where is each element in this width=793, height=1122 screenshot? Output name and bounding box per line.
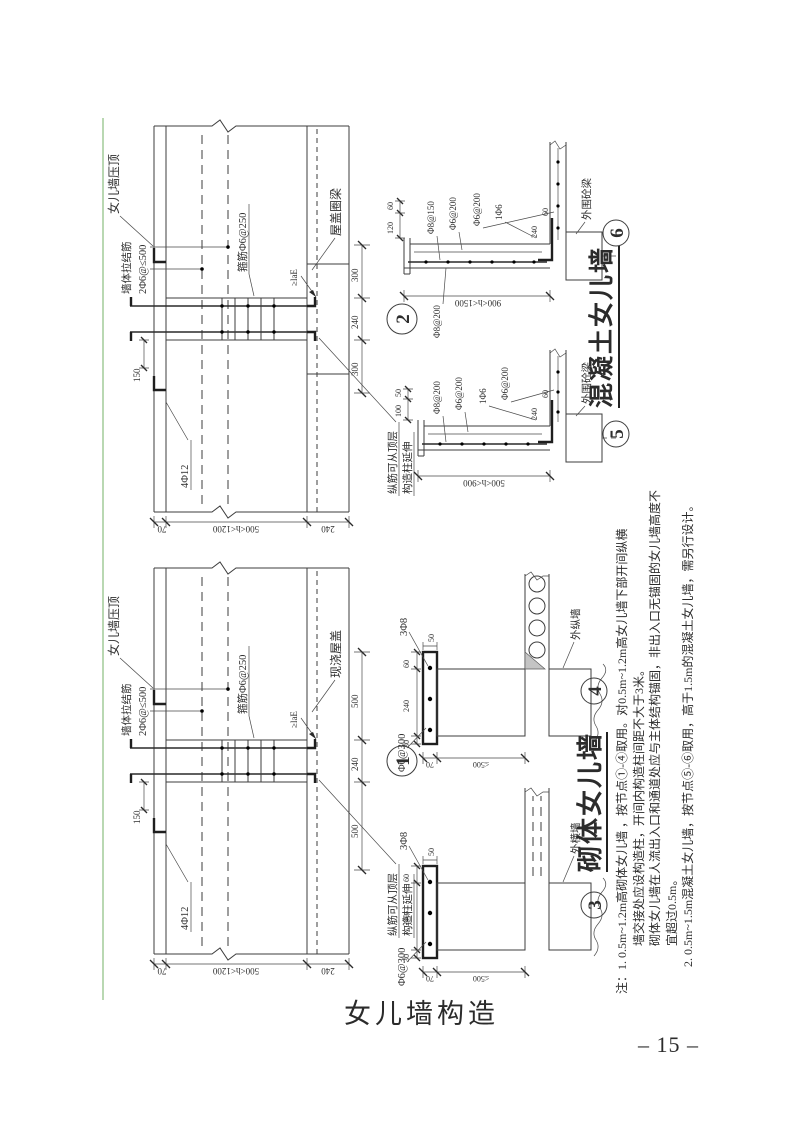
- tie-label-line1: 墙体拉结筋: [120, 242, 133, 295]
- dim-cap: 60: [402, 874, 411, 882]
- dim-cap-edge: 50: [427, 848, 436, 856]
- roof-label: 屋盖圈梁: [328, 188, 343, 236]
- dim-seg: 240: [350, 757, 360, 771]
- note-line: 砌体女儿墙在人流出入口和通道处应与主体结构锚固，非出入口无锚固的女儿墙高度不: [647, 514, 664, 994]
- detail-number: 4: [585, 686, 606, 696]
- detail-number: 5: [607, 429, 628, 439]
- dim-seg: 240: [350, 315, 360, 329]
- rebar-label: Φ6@200: [448, 197, 458, 230]
- detail-5-height-dim: 500<h<900: [414, 470, 554, 488]
- dim-seg: 500: [350, 824, 360, 838]
- detail-3-labels: Φ6@300 3Φ8 外横墙: [397, 822, 582, 986]
- note-prefix: 注：: [615, 970, 629, 994]
- detail-6-height-dim: 900<h<1500: [400, 290, 554, 308]
- detail-2-left-dim: 70 500<h<1200 240: [150, 516, 353, 534]
- coping-label: 女儿墙压顶: [106, 154, 121, 214]
- dim-seg: 300: [350, 268, 360, 282]
- detail-2-hook-dim: 150: [132, 337, 149, 382]
- wall-name-label: 外纵墙: [569, 608, 582, 640]
- concrete-parapet-heading: 混凝土女儿墙: [588, 246, 620, 408]
- detail-4-side-dims: 70 ≤500 50: [419, 634, 529, 769]
- notes-block: 注：1. 0.5m~1.2m高砌体女儿墙 ，按节点①-④取用。对0.5m~1.2…: [614, 514, 697, 994]
- rotated-drawing-canvas: 150 女儿墙压顶 墙体拉结筋 2Φ6@≤500 4Φ12 箍筋Φ6@250 ≥…: [100, 116, 712, 1000]
- dim-seg: 300: [350, 362, 360, 376]
- detail-5-cap-dim: 100 50: [394, 386, 413, 423]
- page-caption: 女儿墙构造: [344, 992, 499, 1031]
- detail-2-wall: [154, 120, 349, 518]
- anchor-length-label: ≥laE: [289, 711, 299, 728]
- stirrup-label: 箍筋Φ6@250: [236, 655, 249, 714]
- note-line: 2. 0.5m~1.5m混凝土女儿墙，按节点⑤-⑥取用，高于1.5m的混凝土女儿…: [680, 514, 697, 994]
- detail-3-number: 3: [581, 892, 607, 918]
- rebar-label: Φ8@200: [432, 381, 442, 414]
- coping-bars-label: 3Φ8: [399, 618, 410, 636]
- detail-1-wall: [154, 562, 349, 960]
- detail-6-wall: [404, 238, 550, 274]
- dim-bend: 60: [541, 390, 550, 398]
- dim-left: 240: [321, 524, 335, 534]
- detail-4-walls: [437, 572, 606, 742]
- detail-6-number: 6: [603, 220, 629, 246]
- dim-left: 70: [426, 760, 434, 769]
- beam-label: 外围砼梁: [580, 178, 593, 220]
- stirrup-label: 箍筋Φ6@250: [236, 213, 249, 272]
- detail-1-left-dim: 70 500<h<1200 240: [150, 958, 353, 976]
- dim-150: 150: [132, 810, 142, 824]
- detail-4-number: 4: [581, 678, 607, 704]
- tie-label-line2: 2Φ6@≤500: [138, 687, 149, 736]
- coping-mesh-label: Φ6@300: [397, 948, 408, 986]
- coping-bars-label: 3Φ8: [399, 832, 410, 850]
- dim-left: 70: [157, 524, 167, 534]
- detail-1-bottom-dim: 500 240 500: [350, 648, 370, 874]
- detail-1-hook-dim: 150: [132, 779, 149, 824]
- dim-bend: 240: [530, 226, 539, 238]
- tie-label-line1: 墙体拉结筋: [120, 684, 133, 737]
- roof-label: 现浇屋盖: [329, 630, 343, 678]
- detail-2-bottom-dim: 300 240 300: [350, 241, 370, 397]
- column-bars-label: 4Φ12: [180, 465, 191, 488]
- detail-number: 6: [607, 228, 628, 238]
- column-bars-label: 4Φ12: [180, 907, 191, 930]
- detail-number: 3: [585, 900, 606, 910]
- rebar-label: Φ6@200: [454, 377, 464, 410]
- masonry-parapet-heading: 砌体女儿墙: [576, 732, 608, 872]
- detail-4-coping: [423, 652, 437, 744]
- dim-bend: 60: [541, 208, 550, 216]
- dim-height: 900<h<1500: [454, 298, 501, 308]
- dim-height: 500<h<900: [463, 478, 505, 488]
- dim-left: ≤500: [473, 974, 489, 983]
- rebar-label: 1Φ6: [478, 388, 488, 404]
- tie-label-line2: 2Φ6@≤500: [138, 245, 149, 294]
- dim-cap: 50: [394, 389, 403, 397]
- detail-6-labels: Φ8@200 Φ8@150 Φ6@200 Φ6@200 1Φ6 240 60 外…: [426, 178, 593, 338]
- wall-rebar-label: Φ8@200: [432, 305, 442, 338]
- dim-left: 70: [426, 974, 434, 983]
- detail-5-number: 5: [603, 421, 629, 447]
- note-line: 宜超过0.5m。: [664, 514, 681, 994]
- detail-5-labels: Φ8@200 Φ6@200 1Φ6 Φ6@200 240 60 外围砼梁: [432, 362, 593, 442]
- note-line: 注：1. 0.5m~1.2m高砌体女儿墙 ，按节点①-④取用。对0.5m~1.2…: [614, 514, 631, 994]
- dim-left: 500<h<1200: [212, 524, 259, 534]
- coping-label: 女儿墙压顶: [106, 596, 121, 656]
- detail-3-coping: [423, 866, 437, 958]
- page-number: – 15 –: [638, 1032, 699, 1058]
- detail-4-labels: Φ6@300 3Φ8 外纵墙: [397, 608, 582, 772]
- detail-2-labels: 女儿墙压顶 墙体拉结筋 2Φ6@≤500 4Φ12 箍筋Φ6@250 ≥laE …: [106, 154, 414, 496]
- scanned-page: 150 女儿墙压顶 墙体拉结筋 2Φ6@≤500 4Φ12 箍筋Φ6@250 ≥…: [0, 0, 793, 1122]
- anchor-length-label: ≥laE: [289, 269, 299, 286]
- dim-seg: 500: [350, 694, 360, 708]
- detail-3-side-dims: 70 ≤500 50: [419, 848, 529, 983]
- rebar-label: 1Φ6: [494, 204, 504, 220]
- detail-2-drawing: 150 女儿墙压顶 墙体拉结筋 2Φ6@≤500 4Φ12 箍筋Φ6@250 ≥…: [104, 104, 434, 534]
- detail-1-drawing: 150 女儿墙压顶 墙体拉结筋 2Φ6@≤500 4Φ12 箍筋Φ6@250 ≥…: [104, 546, 434, 976]
- rebar-label: Φ6@200: [500, 367, 510, 400]
- rebar-label: Φ6@200: [472, 193, 482, 226]
- dim-150: 150: [132, 368, 142, 382]
- dim-cap: 120: [386, 222, 395, 234]
- dim-bend: 240: [530, 408, 539, 420]
- note-line: 墙交接处应设构造柱，开间内构造柱间距不大于3米。: [631, 514, 648, 994]
- dim-cap: 60: [386, 202, 395, 210]
- dim-left: ≤500: [473, 760, 489, 769]
- dim-cap: 60: [402, 660, 411, 668]
- dim-left: 70: [157, 966, 167, 976]
- dim-cap-edge: 50: [427, 634, 436, 642]
- dim-left: 240: [321, 966, 335, 976]
- dim-left: 500<h<1200: [212, 966, 259, 976]
- dim-cap: 240: [402, 914, 411, 926]
- dim-cap: 100: [394, 405, 403, 417]
- rebar-label: Φ8@150: [426, 201, 436, 234]
- detail-5-wall: [418, 420, 550, 456]
- coping-mesh-label: Φ6@300: [397, 734, 408, 772]
- detail-1-labels: 女儿墙压顶 墙体拉结筋 2Φ6@≤500 4Φ12 箍筋Φ6@250 ≥laE …: [106, 596, 414, 938]
- dim-cap: 240: [402, 700, 411, 712]
